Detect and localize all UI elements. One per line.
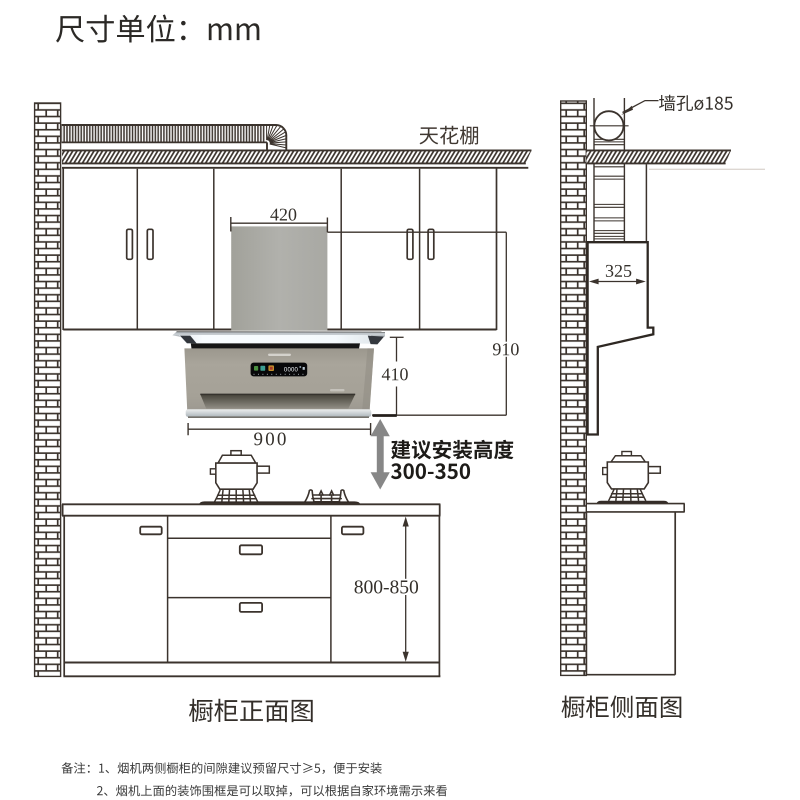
svg-text:0000: 0000: [284, 367, 299, 373]
